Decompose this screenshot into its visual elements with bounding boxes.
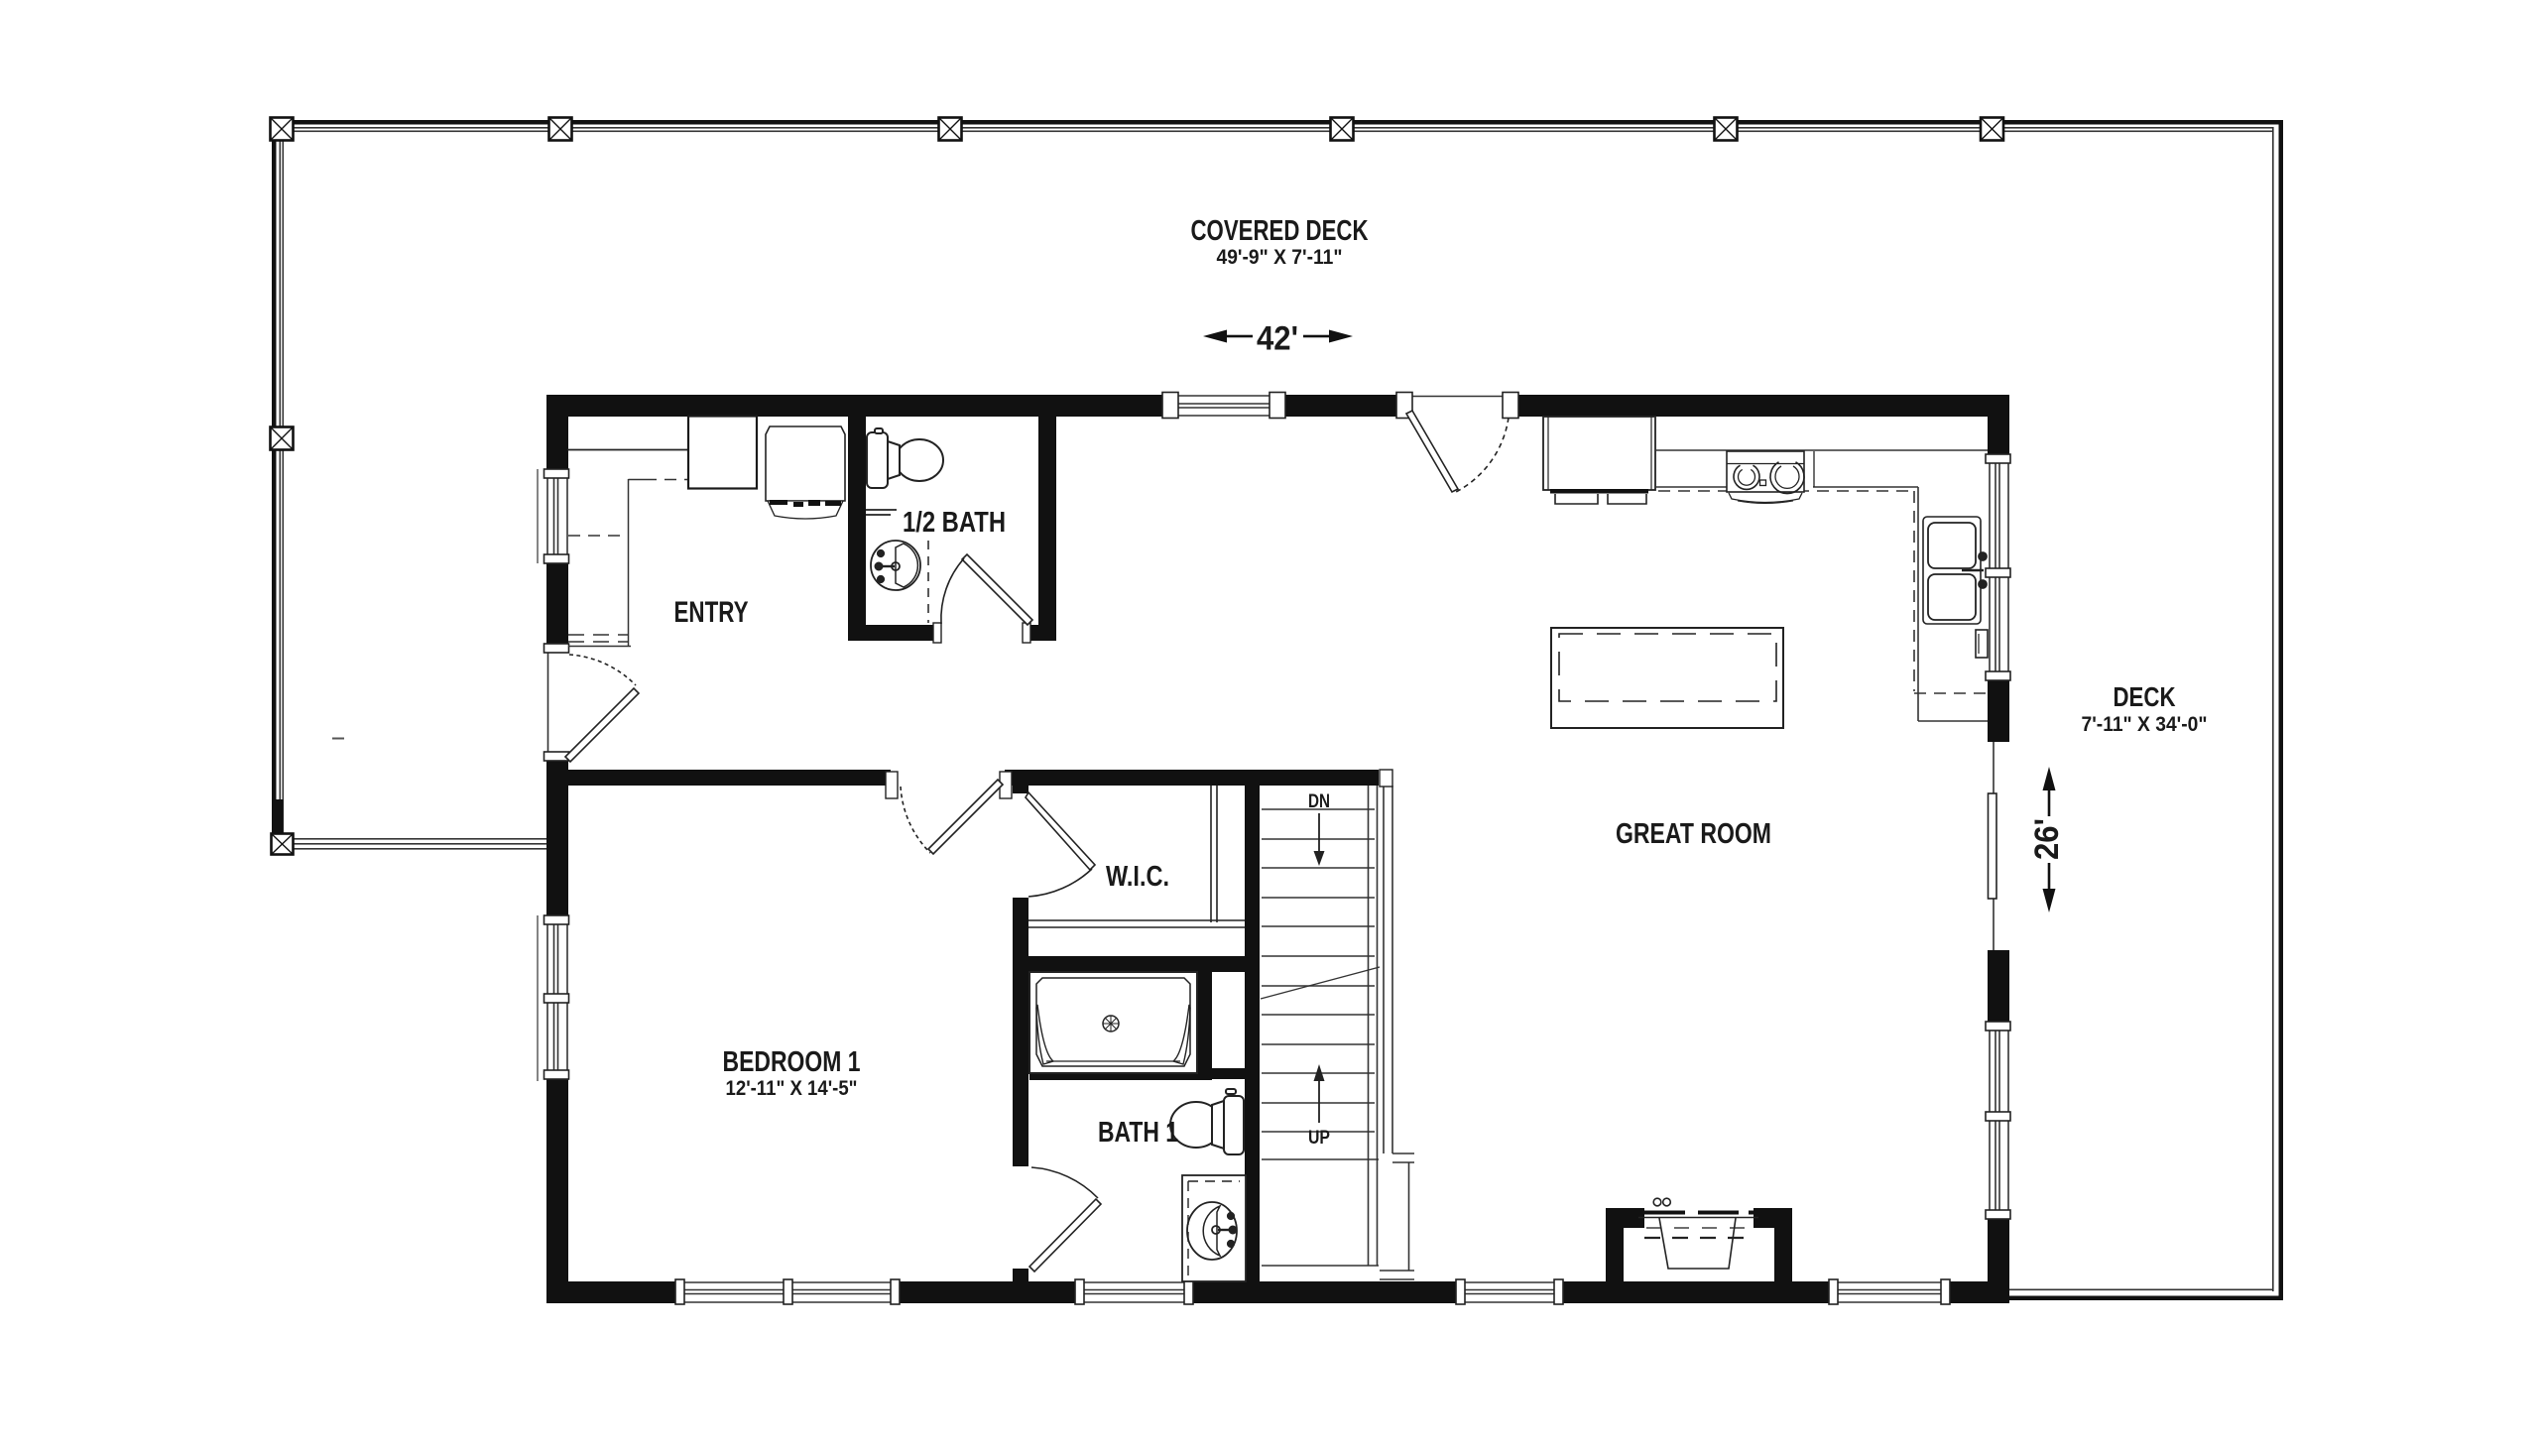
- svg-text:12'-11" X 14'-5": 12'-11" X 14'-5": [726, 1076, 858, 1100]
- svg-text:GREAT ROOM: GREAT ROOM: [1616, 818, 1771, 850]
- svg-text:26': 26': [2028, 818, 2066, 860]
- svg-text:COVERED DECK: COVERED DECK: [1191, 215, 1369, 247]
- svg-text:BATH 1: BATH 1: [1098, 1117, 1178, 1149]
- svg-text:1/2 BATH: 1/2 BATH: [903, 507, 1006, 539]
- svg-text:7'-11" X 34'-0": 7'-11" X 34'-0": [2082, 712, 2208, 736]
- svg-text:42': 42': [1257, 320, 1298, 358]
- svg-text:BEDROOM 1: BEDROOM 1: [723, 1046, 861, 1078]
- svg-text:UP: UP: [1308, 1128, 1330, 1149]
- svg-text:ENTRY: ENTRY: [674, 596, 749, 629]
- svg-text:DECK: DECK: [2114, 681, 2176, 712]
- svg-text:W.I.C.: W.I.C.: [1106, 861, 1169, 893]
- svg-text:DN: DN: [1308, 791, 1330, 812]
- svg-text:49'-9" X 7'-11": 49'-9" X 7'-11": [1217, 245, 1343, 269]
